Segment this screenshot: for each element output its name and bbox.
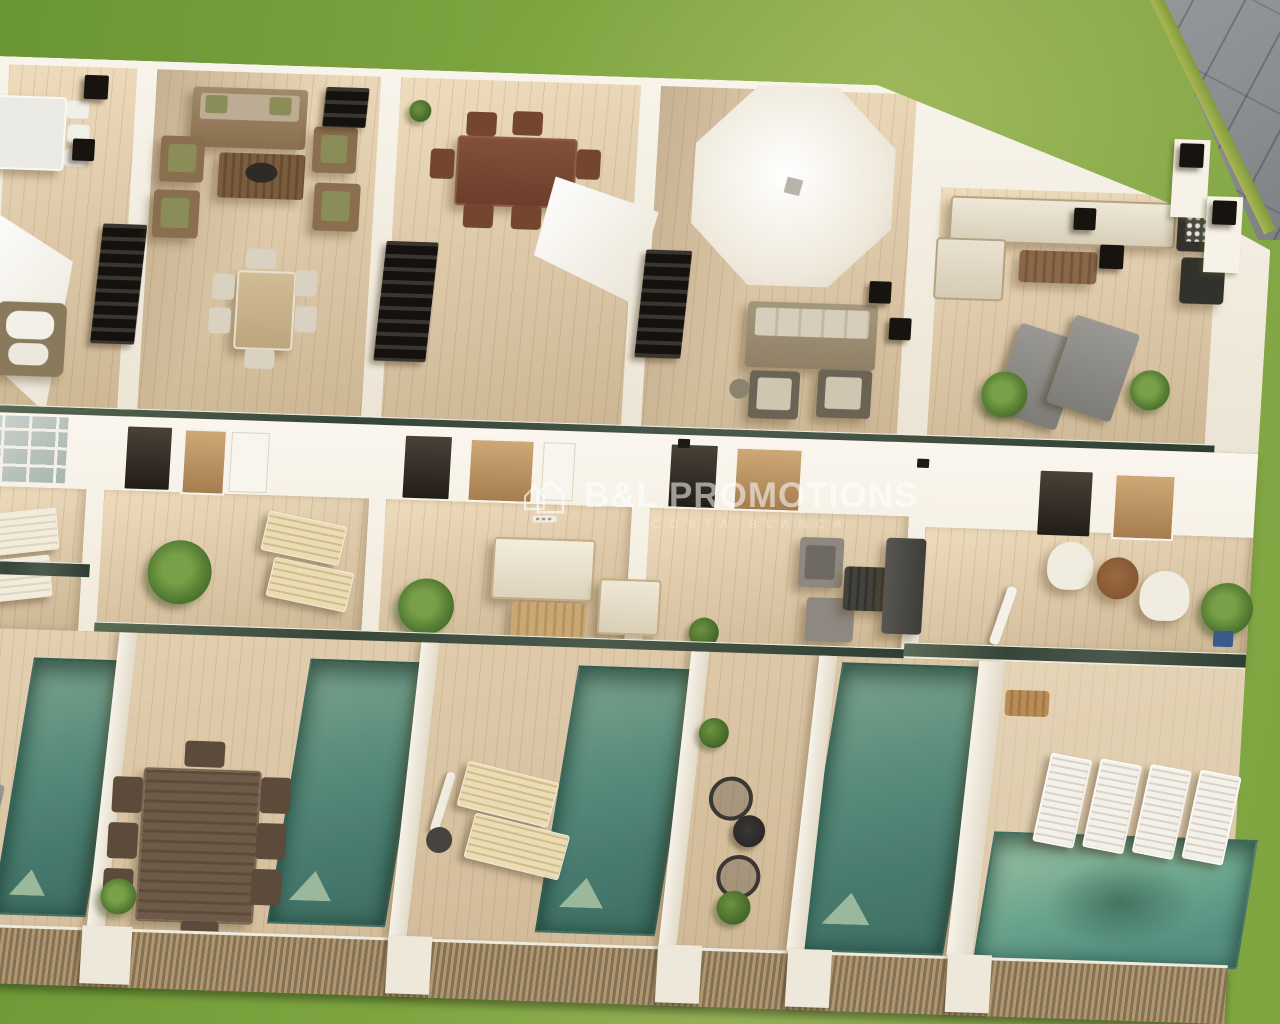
chimney-icon [888, 318, 911, 341]
pool-steps [9, 869, 49, 896]
wall-lamp-icon [678, 439, 691, 448]
sofa-cushions [755, 307, 871, 339]
townhouse-complex [0, 56, 1279, 1023]
green-cushion [321, 191, 351, 222]
door-opening [1037, 471, 1093, 537]
garden-chair [259, 777, 291, 814]
green-cushion [160, 197, 190, 228]
glass-door [732, 447, 804, 513]
terrace-floor-5 [918, 527, 1253, 656]
umbrella-base [425, 827, 453, 854]
rooftop-band [0, 56, 1279, 454]
mahogany-chair [512, 111, 543, 136]
chimney-icon [1099, 245, 1124, 270]
fence-post [385, 935, 432, 994]
chimney-icon [72, 138, 95, 161]
mahogany-chair [466, 112, 497, 137]
glass-door [1111, 473, 1177, 541]
boxwood-shrub [698, 718, 730, 749]
green-pillow [269, 97, 292, 116]
white-door [228, 432, 270, 493]
white-door [540, 442, 575, 501]
roof-coffee-table [1018, 250, 1098, 285]
mahogany-chair [576, 149, 602, 180]
terrace-band [0, 411, 1258, 669]
blue-planter [1213, 631, 1234, 648]
glass-door [180, 428, 228, 495]
door-opening [668, 444, 718, 507]
chimney-icon [1179, 143, 1204, 168]
pool-steps [289, 870, 336, 901]
dining-chair [244, 348, 275, 369]
dining-chair [246, 248, 277, 269]
green-pillow [205, 95, 228, 114]
bistro-table [732, 815, 766, 848]
glass-balustrade [0, 559, 90, 577]
garden-chair [107, 822, 139, 859]
glass-door [466, 438, 536, 504]
glass-pergola [0, 414, 69, 483]
beige-lounger [456, 761, 559, 828]
light-dining-table [233, 270, 297, 351]
green-cushion [167, 144, 197, 173]
pool-steps [821, 892, 874, 925]
terrace-floor-2 [96, 490, 369, 641]
teak-side-table [1004, 690, 1050, 717]
mahogany-chair [510, 205, 541, 230]
palm-shadow [1038, 855, 1203, 950]
chimney-icon [869, 281, 892, 304]
garden-chair [255, 823, 287, 860]
chimney-icon [1212, 200, 1237, 225]
fence-post [785, 949, 832, 1008]
garden-band [0, 627, 1245, 965]
barrel-chair [1046, 541, 1095, 590]
pool-steps [559, 877, 608, 908]
door-opening [125, 426, 173, 489]
white-dining-table [0, 95, 68, 171]
mahogany-chair [429, 148, 455, 179]
armchair-cushion [5, 310, 55, 340]
cream-sofa [491, 537, 597, 602]
stairwell-opening [322, 87, 369, 128]
cream-armchair [597, 578, 662, 636]
potted-plant [99, 878, 137, 915]
garden-chair [184, 741, 226, 768]
boxwood-shrub [716, 890, 752, 925]
garden-chair [250, 869, 282, 906]
chair-cushion [756, 377, 792, 410]
fence-post [945, 954, 992, 1013]
fence-post [655, 944, 702, 1003]
chair-cushion [824, 377, 862, 410]
barrel-chair [1138, 570, 1191, 622]
fence-post [79, 925, 132, 985]
terrace-coffee-table [510, 601, 586, 639]
green-cushion [320, 135, 348, 164]
render-scene: B&L PROMOTIONS COSTA BLANCA [0, 0, 1280, 1024]
door-opening [402, 436, 452, 499]
dining-chair [294, 306, 318, 333]
chimney-icon [1073, 208, 1096, 231]
corner-sofa-chaise [933, 237, 1007, 301]
dining-chair [208, 307, 232, 334]
mahogany-chair [462, 203, 493, 228]
white-dining-chair [66, 100, 89, 119]
garden-dining-table [135, 767, 262, 925]
dining-chair [294, 270, 318, 297]
wall-lamp-icon [917, 459, 930, 468]
dining-chair [212, 273, 236, 300]
gray-cushion [804, 545, 836, 580]
charcoal-sofa [881, 538, 927, 635]
armchair-cushion [8, 342, 49, 365]
garden-chair [111, 776, 143, 813]
closed-umbrella [429, 771, 456, 833]
chimney-icon [84, 75, 109, 100]
